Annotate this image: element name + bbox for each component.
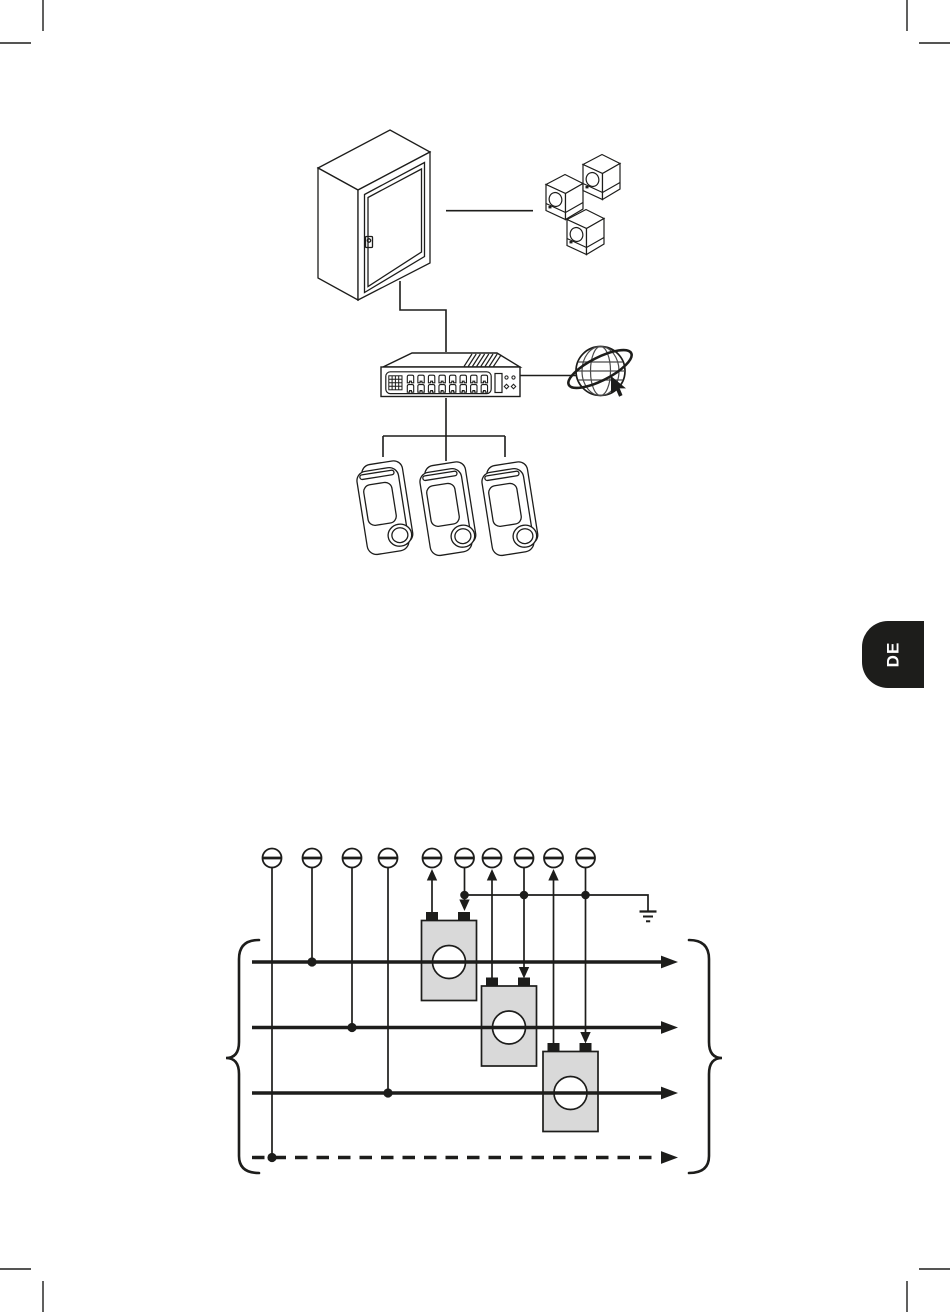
crop-mark-bottom-right: [907, 1269, 950, 1312]
terminal-row: [263, 849, 596, 868]
screw-terminal-icon: [263, 849, 282, 868]
current-transformer-icon: [482, 978, 537, 1067]
charging-wallbox-icon: [418, 461, 479, 557]
wiring-diagram: [226, 849, 722, 1174]
arrow-up: [487, 869, 497, 881]
arrow-up: [548, 869, 558, 881]
line-cabinet-to-switch: [400, 281, 446, 352]
arrow-right: [661, 1021, 678, 1034]
manual-page: DE: [0, 0, 950, 1312]
earth-ground-icon: [640, 912, 657, 922]
current-transformer-icon: [422, 912, 477, 1001]
curly-brace-left: [226, 940, 259, 1173]
arrow-up: [427, 869, 437, 881]
distribution-cabinet-icon: [318, 130, 430, 300]
crop-mark-bottom-left: [0, 1269, 43, 1312]
arrow-right: [661, 1151, 678, 1164]
screw-terminal-icon: [303, 849, 322, 868]
screw-terminal-icon: [576, 849, 595, 868]
energy-meter-group: [546, 155, 620, 255]
network-diagram: [318, 130, 636, 557]
screw-terminal-icon: [515, 849, 534, 868]
crop-mark-top-left: [0, 0, 43, 43]
screw-terminal-icon: [343, 849, 362, 868]
language-tab-label: DE: [885, 642, 902, 668]
screw-terminal-icon: [379, 849, 398, 868]
network-switch-icon: [381, 353, 520, 397]
wallbox-group: [355, 460, 541, 557]
arrow-down: [459, 900, 469, 912]
charging-wallbox-icon: [480, 461, 541, 557]
curly-brace-right: [689, 940, 722, 1173]
screw-terminal-icon: [544, 849, 563, 868]
internet-globe-icon: [564, 343, 637, 397]
arrow-down: [519, 967, 529, 979]
energy-meter-cube-icon: [567, 210, 604, 255]
screw-terminal-icon: [423, 849, 442, 868]
charging-wallbox-icon: [355, 460, 416, 556]
language-tab: DE: [862, 621, 924, 688]
arrow-right: [661, 956, 678, 969]
screw-terminal-icon: [455, 849, 474, 868]
crop-mark-top-right: [907, 0, 950, 43]
screw-terminal-icon: [483, 849, 502, 868]
arrow-right: [661, 1087, 678, 1100]
energy-meter-cube-icon: [583, 155, 620, 200]
arrow-down: [580, 1032, 590, 1044]
current-transformer-icon: [543, 1043, 598, 1132]
page-artwork: [0, 0, 950, 1312]
energy-meter-cube-icon: [546, 175, 583, 220]
